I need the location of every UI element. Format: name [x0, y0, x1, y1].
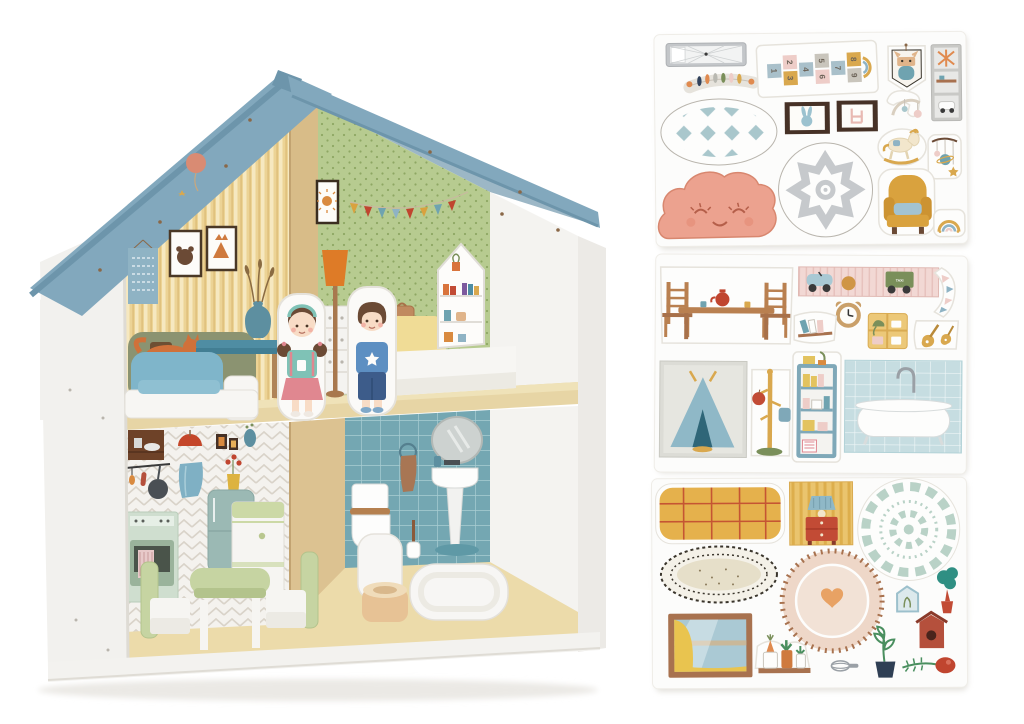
sticker-diamond-oval-rug — [661, 98, 778, 165]
sticker-sheet-2: TAXI — [654, 254, 969, 475]
sticker-stitched-round-rug — [782, 551, 883, 652]
sticker-sheet-1: 1 2 3 4 5 6 7 8 9 — [654, 31, 969, 249]
sticker-wall-prints-strip — [931, 44, 962, 120]
frying-pan-print — [148, 479, 168, 499]
sticker-mandala-rug — [778, 142, 873, 237]
alphabet-chart — [128, 248, 158, 304]
sticker-coat-rack — [751, 369, 791, 456]
sink-print — [432, 468, 478, 488]
scene-illustration: 1 2 3 4 5 6 7 8 9 — [0, 0, 1024, 724]
sticker-toy-shelf: TAXI — [798, 267, 938, 297]
sticker-rainbow — [934, 209, 965, 236]
right-outer-wall — [578, 236, 606, 652]
sticker-skylight-window — [666, 43, 746, 67]
sticker-chair-frame — [837, 100, 878, 131]
sticker-rocking-horse — [878, 129, 926, 166]
sticker-dining-set — [660, 267, 793, 344]
wagon-label: TAXI — [896, 279, 904, 283]
sticker-bathtub-tiles — [844, 360, 962, 453]
sticker-nightstand-panel — [789, 482, 852, 545]
sticker-doily-rug — [857, 478, 960, 581]
sticker-plaid-blanket — [655, 483, 784, 544]
product-photo: 1 2 3 4 5 6 7 8 9 — [0, 0, 1024, 724]
towel-print — [179, 462, 203, 498]
sticker-blue-bookshelf — [792, 352, 841, 462]
sticker-birdhouse — [916, 612, 947, 649]
boy-doll — [348, 287, 396, 415]
sticker-guitars — [914, 321, 958, 349]
house-shadow — [38, 679, 598, 701]
sticker-yellow-cabinet — [868, 313, 907, 348]
hanging-towel-print — [400, 455, 416, 492]
sticker-planet-mobile — [928, 134, 961, 178]
sticker-window-curtain — [668, 613, 752, 677]
balloon-print — [186, 153, 206, 173]
sticker-book-shelf — [794, 312, 836, 343]
sticker-sheet-3 — [651, 477, 967, 692]
sticker-teepee-poster — [659, 361, 747, 458]
sticker-bear-clock — [835, 301, 862, 329]
sticker-yellow-armchair — [878, 169, 935, 236]
sticker-hopscotch-mat: 1 2 3 4 5 6 7 8 9 — [756, 40, 878, 97]
sticker-bunny-frame — [785, 102, 830, 134]
girl-doll — [277, 294, 327, 420]
white-bathtub — [410, 564, 508, 620]
dollhouse — [30, 70, 606, 701]
wooden-toilet — [358, 534, 408, 622]
